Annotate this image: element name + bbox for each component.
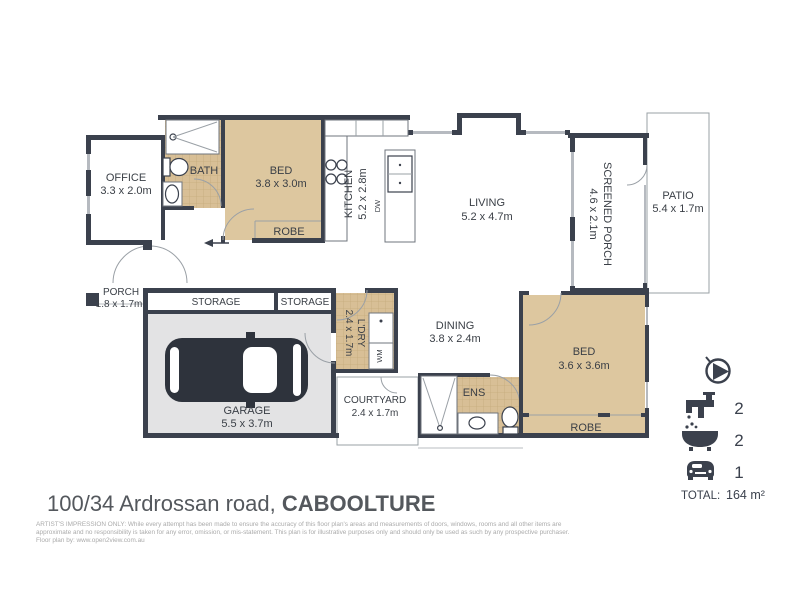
disclaimer-line-3: Floor plan by: www.open2view.com.au [36,537,145,544]
total-label: TOTAL: [681,490,720,502]
vanity-ens [458,413,498,434]
compass-icon [706,357,730,383]
office-window [87,154,90,170]
dining-dims: 3.8 x 2.4m [429,333,480,345]
bathtub-icon [682,422,718,451]
car-icon [687,461,714,480]
dishwasher-label: DW [373,199,382,212]
bed1-dims: 3.8 x 3.0m [255,178,306,190]
bed1-label: BED [270,165,293,177]
laundry-label: L'DRY [355,319,366,348]
screened-porch-dims: 4.6 x 2.1m [587,188,599,239]
screened-porch-label: SCREENED PORCH [601,162,613,266]
living-window [521,131,565,134]
courtyard-dims: 2.4 x 1.7m [352,408,399,419]
porch-label: PORCH [103,287,139,298]
patio-label: PATIO [662,190,694,202]
storage2-label: STORAGE [281,297,330,308]
living-label: LIVING [469,197,505,209]
living-window [412,131,457,134]
garage-dims: 5.5 x 3.7m [221,418,272,430]
bed2-window [646,382,648,408]
porch-screen [644,185,646,283]
basin-bath [163,182,182,206]
kitchen-label: KITCHEN [343,170,355,218]
shower-ens [421,376,457,434]
shower-bath [166,120,219,154]
porch-window [571,241,574,286]
dining-label: DINING [436,320,475,332]
porch-dims: 1.8 x 1.7m [96,299,143,310]
bath-count: 2 [734,431,743,450]
entry-arrow [204,239,229,247]
floor-plan-canvas: OFFICE 3.3 x 2.0m BATH BED 3.8 x 3.0m RO… [0,0,800,600]
robe2-label: ROBE [570,422,601,434]
garage-label: GARAGE [223,405,270,417]
tap-count: 2 [734,399,743,418]
robe1-label: ROBE [273,226,304,238]
ens-label: ENS [463,387,486,399]
bed2-dims: 3.6 x 3.6m [558,360,609,372]
screen-door-arc [627,165,647,185]
disclaimer-line-2: approximate and no responsibility is tak… [36,529,570,536]
office-window [87,196,90,214]
car-top-view [165,332,308,408]
washing-machine-label: WM [375,349,384,362]
toilet-bath [163,158,188,176]
kitchen-dims: 5.2 x 2.8m [357,168,369,219]
storage1-label: STORAGE [192,297,241,308]
address-suburb: CABOOLTURE [282,491,436,516]
footer: 100/34 Ardrossan road, CABOOLTURE ARTIST… [36,491,570,544]
porch-window [571,152,574,217]
kitchen-island [385,150,415,242]
tap-icon [686,392,715,419]
entry-door-arc [113,246,187,283]
bed2-label: BED [573,346,596,358]
courtyard-label: COURTYARD [344,395,406,406]
total-value: 164 m² [726,488,765,502]
disclaimer-line-1: ARTIST'S IMPRESSION ONLY: While every at… [36,521,562,528]
legend: 2 2 1 TOTAL: 164 m² [681,357,765,502]
office-label: OFFICE [106,172,146,184]
bath-label: BATH [190,165,219,177]
laundry-dims: 2.4 x 1.7m [343,310,354,357]
bed2-window [646,307,648,325]
toilet-ens [502,407,518,434]
living-dims: 5.2 x 4.7m [461,211,512,223]
patio-dims: 5.4 x 1.7m [652,203,703,215]
car-count: 1 [734,463,743,482]
office-dims: 3.3 x 2.0m [100,185,151,197]
address-street: 100/34 Ardrossan road, [47,491,282,516]
courtyard-door-arc [381,377,397,393]
address-title: 100/34 Ardrossan road, CABOOLTURE [47,491,435,516]
